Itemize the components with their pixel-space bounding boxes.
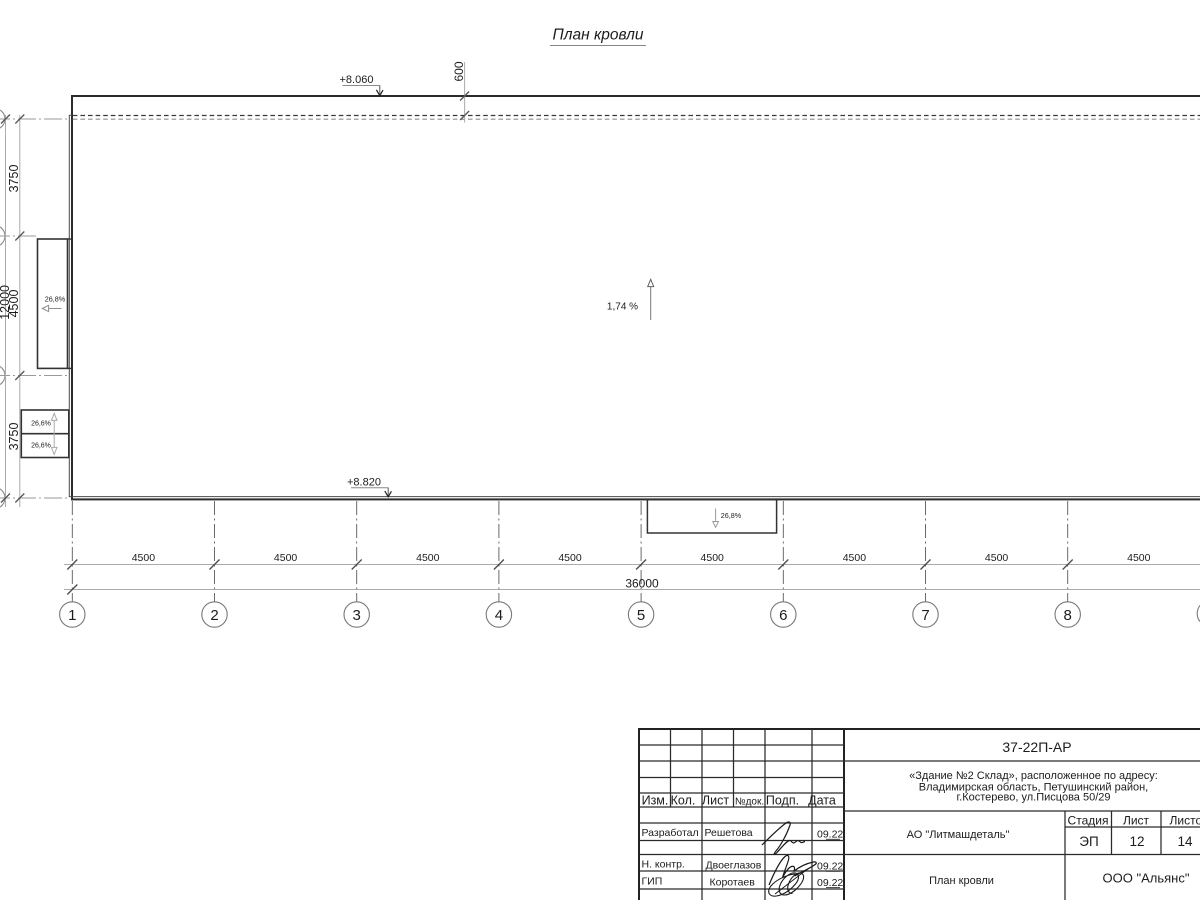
svg-text:4500: 4500 [132,552,156,564]
svg-text:1,74 %: 1,74 % [607,302,638,313]
svg-text:3750: 3750 [7,165,21,193]
svg-text:37-22П-АР: 37-22П-АР [1002,739,1071,755]
svg-text:09.22: 09.22 [817,829,843,841]
svg-text:4500: 4500 [701,552,725,564]
svg-text:7: 7 [921,607,929,624]
svg-text:Лист: Лист [1123,814,1150,828]
svg-text:4500: 4500 [7,290,21,318]
svg-text:План кровли: План кровли [929,875,994,887]
svg-text:09.22: 09.22 [817,877,843,889]
svg-text:3750: 3750 [7,423,21,451]
svg-text:ЭП: ЭП [1079,834,1098,849]
svg-text:26,8%: 26,8% [45,294,66,303]
svg-text:4500: 4500 [558,552,582,564]
svg-text:Изм.: Изм. [642,794,669,808]
svg-text:1: 1 [68,607,76,624]
svg-text:План кровли: План кровли [553,27,644,44]
svg-text:600: 600 [452,61,466,81]
svg-text:Решетова: Решетова [705,827,753,839]
svg-text:26,6%: 26,6% [31,421,51,428]
svg-text:Стадия: Стадия [1068,814,1109,828]
svg-text:Кол.: Кол. [671,794,696,808]
svg-text:+8.820: +8.820 [347,476,381,488]
svg-text:4500: 4500 [985,552,1009,564]
svg-text:09.22: 09.22 [817,861,843,873]
svg-text:8: 8 [1064,607,1072,624]
svg-text:14: 14 [1177,834,1193,849]
svg-text:4: 4 [495,607,503,624]
svg-text:4500: 4500 [274,552,298,564]
svg-text:3: 3 [353,607,361,624]
svg-text:Дата: Дата [808,794,836,808]
svg-text:6: 6 [779,607,787,624]
svg-text:ГИП: ГИП [642,876,663,888]
svg-text:4500: 4500 [1127,552,1151,564]
svg-text:Двоеглазов: Двоеглазов [706,860,762,872]
svg-text:36000: 36000 [625,577,659,591]
svg-text:4500: 4500 [843,552,867,564]
svg-text:2: 2 [210,607,218,624]
svg-text:Н. контр.: Н. контр. [642,859,685,871]
svg-text:АО "Литмашдеталь": АО "Литмашдеталь" [907,829,1010,841]
svg-text:12: 12 [1129,834,1144,849]
svg-text:Листов: Листов [1170,814,1200,828]
svg-text:Разработал: Разработал [642,827,699,839]
svg-text:26,6%: 26,6% [31,443,51,450]
svg-text:«Здание №2 Склад», расположенн: «Здание №2 Склад», расположенное по адре… [909,770,1158,782]
svg-text:Подп.: Подп. [766,794,799,808]
svg-text:г.Костерево, ул.Писцова 50/29: г.Костерево, ул.Писцова 50/29 [957,792,1111,804]
svg-text:ООО "Альянс": ООО "Альянс" [1103,871,1190,886]
svg-text:Лист: Лист [702,794,729,808]
svg-text:Коротаев: Коротаев [710,877,756,889]
svg-text:+8.060: +8.060 [340,74,374,86]
svg-text:№док.: №док. [735,797,764,808]
svg-text:5: 5 [637,607,645,624]
svg-text:4500: 4500 [416,552,440,564]
svg-text:26,8%: 26,8% [721,511,742,520]
